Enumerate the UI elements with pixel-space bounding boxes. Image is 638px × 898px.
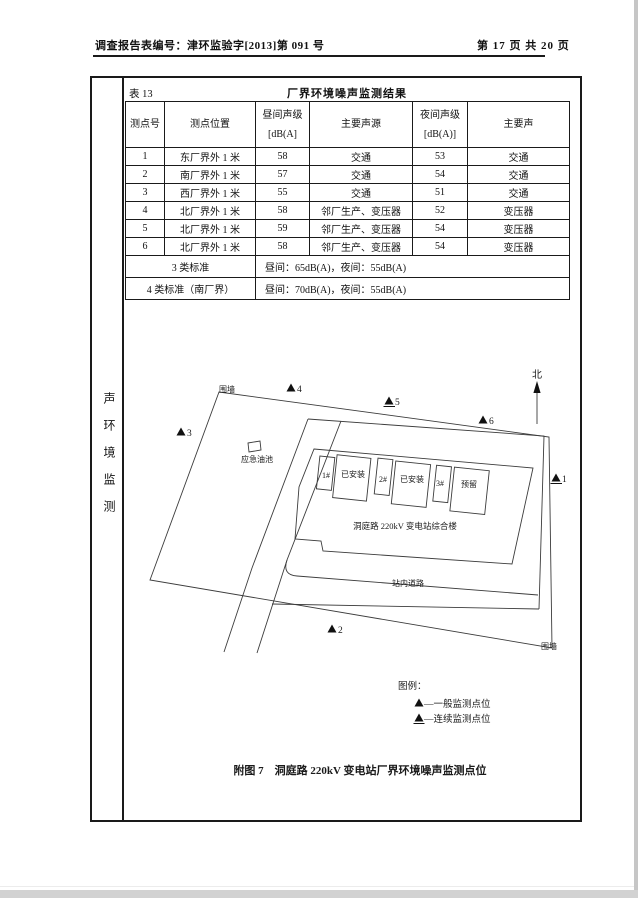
monitoring-point-num: 3 — [187, 429, 192, 439]
column-header-day-level: 昼间声级[dB(A] — [256, 102, 310, 148]
monitoring-point-num: 6 — [489, 417, 494, 427]
table-cell: 1 — [126, 148, 165, 166]
standard-value: 昼间：65dB(A)，夜间：55dB(A) — [256, 256, 570, 278]
bay-1-num: 1# — [322, 471, 330, 480]
table-cell: 51 — [413, 184, 468, 202]
monitoring-point-triangle — [385, 397, 394, 405]
report-number: 调查报告表编号：津环监验字[2013]第 091 号 — [95, 37, 324, 53]
table-cell: 西厂界外 1 米 — [165, 184, 256, 202]
north-arrow-head — [533, 381, 540, 393]
table-cell: 59 — [256, 220, 310, 238]
table-cell: 变压器 — [468, 238, 570, 256]
site-plan-diagram: 北 围墙 围墙 站内道路 应急油池 洞庭路 220kV 变电站综合楼 1# 已安… — [90, 350, 582, 790]
noise-monitoring-table: 测点号 测点位置 昼间声级[dB(A] 主要声源 夜间声级[dB(A)] 主要声… — [125, 101, 570, 300]
table-cell: 交通 — [310, 148, 413, 166]
table-cell: 53 — [413, 148, 468, 166]
road-label: 站内道路 — [392, 578, 424, 588]
table-cell: 邻厂生产、变压器 — [310, 220, 413, 238]
column-header-location: 测点位置 — [165, 102, 256, 148]
bay-2-status: 已安装 — [400, 474, 424, 484]
table-cell: 交通 — [310, 184, 413, 202]
column-header-day-source: 主要声源 — [310, 102, 413, 148]
table-cell: 北厂界外 1 米 — [165, 238, 256, 256]
wall-label-bottom: 围墙 — [541, 641, 557, 651]
oil-pool-label: 应急油池 — [241, 454, 273, 464]
page-bottom-faint-line — [0, 886, 638, 887]
monitoring-point-2: 2 — [328, 625, 344, 637]
inner-fence — [308, 419, 544, 609]
bay-2-num: 2# — [379, 475, 387, 484]
table-title: 厂界环境噪声监测结果 — [125, 85, 569, 101]
table-row: 5 北厂界外 1 米 59 邻厂生产、变压器 54 变压器 — [126, 220, 570, 238]
page-number: 第 17 页 共 20 页 — [477, 37, 570, 53]
legend-continuous-label: —连续监测点位 — [423, 713, 491, 725]
monitoring-point-triangle — [287, 384, 296, 392]
standard-label: 4 类标准（南厂界） — [126, 278, 256, 300]
table-cell: 变压器 — [468, 220, 570, 238]
legend-general-triangle — [415, 699, 424, 707]
table-cell: 南厂界外 1 米 — [165, 166, 256, 184]
table-cell: 东厂界外 1 米 — [165, 148, 256, 166]
table-cell: 58 — [256, 148, 310, 166]
table-cell: 邻厂生产、变压器 — [310, 238, 413, 256]
table-cell: 55 — [256, 184, 310, 202]
bay-1-status: 已安装 — [341, 469, 365, 479]
table-cell: 54 — [413, 238, 468, 256]
monitoring-point-triangle — [479, 416, 488, 424]
table-cell: 57 — [256, 166, 310, 184]
monitoring-point-4: 4 — [287, 384, 303, 396]
road-branch-north-edge — [286, 560, 538, 595]
table-cell: 变压器 — [468, 202, 570, 220]
bay-3-unit — [450, 467, 489, 514]
table-cell: 5 — [126, 220, 165, 238]
standard-row-class4: 4 类标准（南厂界） 昼间：70dB(A)，夜间：55dB(A) — [126, 278, 570, 300]
header-rule — [93, 55, 545, 57]
monitoring-point-triangle — [552, 474, 561, 482]
standard-label: 3 类标准 — [126, 256, 256, 278]
north-arrow: 北 — [532, 369, 542, 424]
table-cell: 3 — [126, 184, 165, 202]
table-cell: 58 — [256, 202, 310, 220]
wall-label-top: 围墙 — [219, 384, 235, 394]
table-cell: 54 — [413, 166, 468, 184]
monitoring-point-num: 1 — [562, 475, 567, 485]
legend-general-label: —一般监测点位 — [423, 698, 491, 710]
monitoring-point-6: 6 — [479, 416, 495, 428]
boundary-wall — [150, 392, 552, 648]
table-tag: 表 13 — [129, 86, 153, 101]
table-row: 6 北厂界外 1 米 58 邻厂生产、变压器 54 变压器 — [126, 238, 570, 256]
monitoring-point-num: 2 — [338, 626, 343, 636]
table-cell: 交通 — [468, 166, 570, 184]
monitoring-point-triangle — [177, 428, 186, 436]
bay-3-status: 预留 — [461, 479, 477, 489]
table-cell: 6 — [126, 238, 165, 256]
monitoring-point-num: 4 — [297, 385, 302, 395]
standard-value: 昼间：70dB(A)，夜间：55dB(A) — [256, 278, 570, 300]
table-row: 1 东厂界外 1 米 58 交通 53 交通 — [126, 148, 570, 166]
table-cell: 4 — [126, 202, 165, 220]
north-label: 北 — [532, 369, 542, 381]
table-cell: 交通 — [468, 148, 570, 166]
monitoring-point-5: 5 — [384, 397, 401, 409]
table-cell: 北厂界外 1 米 — [165, 220, 256, 238]
table-cell: 交通 — [468, 184, 570, 202]
table-row: 3 西厂界外 1 米 55 交通 51 交通 — [126, 184, 570, 202]
figure-caption: 附图 7 洞庭路 220kV 变电站厂界环境噪声监测点位 — [233, 763, 486, 777]
column-header-night-level: 夜间声级[dB(A)] — [413, 102, 468, 148]
monitoring-point-1: 1 — [551, 474, 568, 486]
monitoring-point-triangle — [328, 625, 337, 633]
table-cell: 58 — [256, 238, 310, 256]
table-row: 2 南厂界外 1 米 57 交通 54 交通 — [126, 166, 570, 184]
table-row: 4 北厂界外 1 米 58 邻厂生产、变压器 52 变压器 — [126, 202, 570, 220]
main-building-label: 洞庭路 220kV 变电站综合楼 — [353, 521, 457, 531]
bay-2-unit — [391, 461, 430, 507]
table-cell: 邻厂生产、变压器 — [310, 202, 413, 220]
column-header-night-source: 主要声 — [468, 102, 570, 148]
oil-pool — [248, 441, 261, 452]
column-header-point: 测点号 — [126, 102, 165, 148]
scanned-report-page: { "page": { "header_left": "调查报告表编号：津环监验… — [0, 0, 638, 898]
road-branch-south-edge — [272, 604, 539, 609]
page-right-edge — [634, 0, 638, 898]
page-bottom-edge — [0, 890, 638, 898]
legend-continuous-triangle — [415, 714, 424, 722]
legend: 图例： —一般监测点位 —连续监测点位 — [398, 680, 491, 725]
table-cell: 54 — [413, 220, 468, 238]
bay-3-num: 3# — [436, 479, 444, 488]
monitoring-point-num: 5 — [395, 398, 400, 408]
table-cell: 52 — [413, 202, 468, 220]
standard-row-class3: 3 类标准 昼间：65dB(A)，夜间：55dB(A) — [126, 256, 570, 278]
monitoring-point-3: 3 — [177, 428, 193, 440]
legend-title: 图例： — [398, 680, 427, 692]
table-header-row: 测点号 测点位置 昼间声级[dB(A] 主要声源 夜间声级[dB(A)] 主要声 — [126, 102, 570, 148]
table-cell: 2 — [126, 166, 165, 184]
table-cell: 交通 — [310, 166, 413, 184]
table-cell: 北厂界外 1 米 — [165, 202, 256, 220]
